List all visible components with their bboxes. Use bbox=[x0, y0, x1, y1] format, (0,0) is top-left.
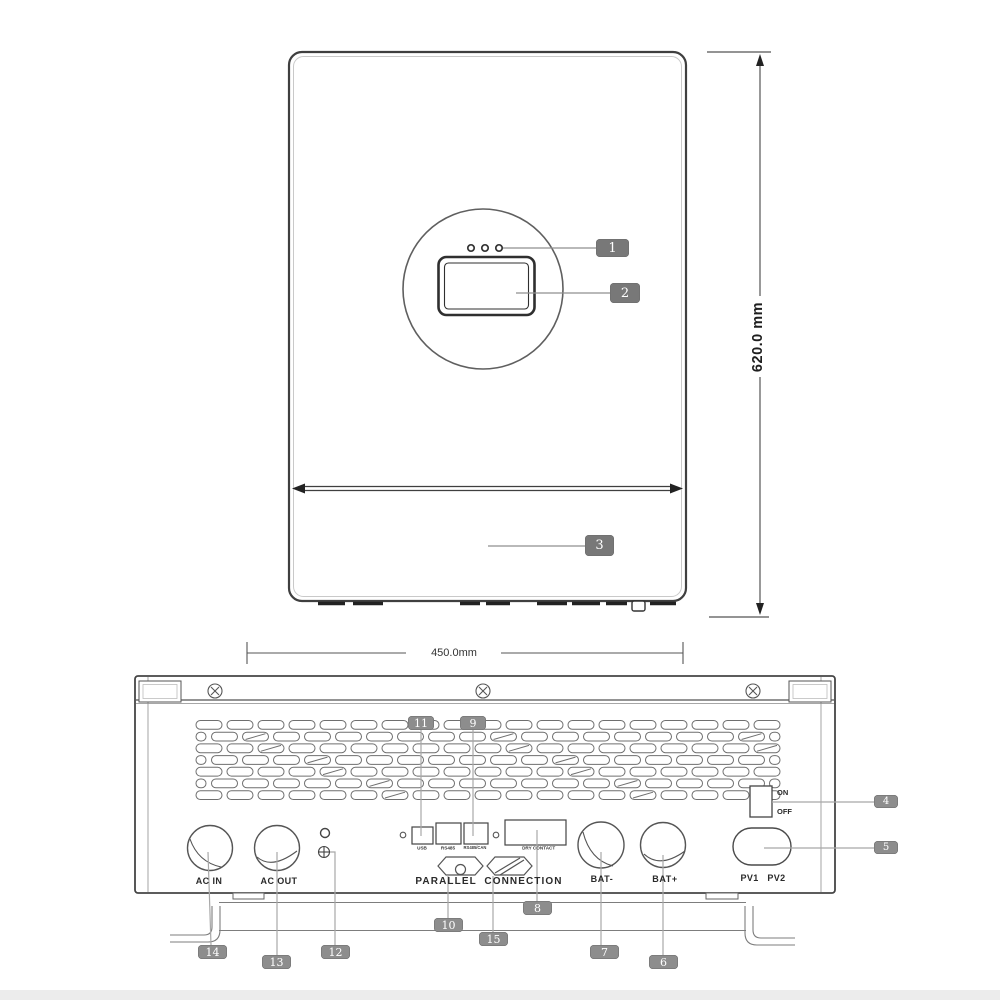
dry-contact-port bbox=[505, 820, 566, 845]
led-indicators bbox=[468, 245, 502, 251]
rs485-can-label: RS485/CAN bbox=[463, 846, 487, 850]
led-3 bbox=[496, 245, 502, 251]
rs485-label: RS485 bbox=[438, 846, 459, 851]
bottom-tab-right bbox=[706, 893, 738, 899]
bat-plus-label: BAT+ bbox=[637, 875, 693, 884]
height-dimension-label: 620.0 mm bbox=[750, 295, 766, 379]
led-2 bbox=[482, 245, 488, 251]
callout-14: 14 bbox=[198, 945, 227, 959]
callout-6: 6 bbox=[649, 955, 678, 969]
switch-on-label: ON bbox=[777, 789, 799, 797]
callout-12: 12 bbox=[321, 945, 350, 959]
callout-5: 5 bbox=[874, 841, 898, 854]
width-dimension-label: 450.0mm bbox=[411, 647, 497, 659]
callout-2: 2 bbox=[610, 283, 640, 303]
callout-8: 8 bbox=[523, 901, 552, 915]
callout-3: 3 bbox=[585, 535, 614, 556]
callout-4: 4 bbox=[874, 795, 898, 808]
callout-1: 1 bbox=[596, 239, 629, 257]
led-1 bbox=[468, 245, 474, 251]
callout-13: 13 bbox=[262, 955, 291, 969]
parallel-port-2 bbox=[487, 857, 532, 875]
parallel-port-1-pin bbox=[456, 865, 466, 875]
front-view bbox=[289, 52, 686, 611]
lcd-screen-outline bbox=[439, 257, 535, 315]
front-bottom-knob bbox=[632, 601, 645, 611]
bottom-view bbox=[135, 676, 835, 945]
callout-7: 7 bbox=[590, 945, 619, 959]
callout-15: 15 bbox=[479, 932, 508, 946]
screw bbox=[321, 829, 330, 838]
status-led-left bbox=[400, 832, 406, 838]
usb-port bbox=[412, 827, 433, 844]
diagram-linework bbox=[0, 0, 1000, 1000]
pv-label: PV1 PV2 bbox=[723, 874, 803, 883]
ac-out-label: AC OUT bbox=[250, 877, 308, 886]
rs485-port bbox=[436, 823, 461, 844]
ground-terminal bbox=[319, 847, 330, 858]
power-switch bbox=[750, 786, 772, 817]
usb-label: USB bbox=[412, 846, 433, 851]
rs485-can-port bbox=[464, 823, 488, 844]
page-bottom-band bbox=[0, 990, 1000, 1000]
parallel-connection-label: PARALLEL CONNECTION bbox=[408, 877, 570, 887]
switch-off-label: OFF bbox=[777, 808, 801, 816]
bottom-tab-left bbox=[233, 893, 264, 899]
status-led-right bbox=[493, 832, 499, 838]
ac-in-label: AC IN bbox=[180, 877, 238, 886]
pv-input-port bbox=[733, 828, 791, 865]
callout-9: 9 bbox=[460, 716, 486, 730]
inverter-dimension-diagram: 620.0 mm 450.0mm AC IN AC OUT USB RS485 … bbox=[0, 0, 1000, 1000]
dry-contact-label: DRY CONTACT bbox=[522, 846, 550, 851]
bat-minus-label: BAT- bbox=[574, 875, 630, 884]
callout-11: 11 bbox=[408, 716, 434, 730]
callout-10: 10 bbox=[434, 918, 463, 932]
